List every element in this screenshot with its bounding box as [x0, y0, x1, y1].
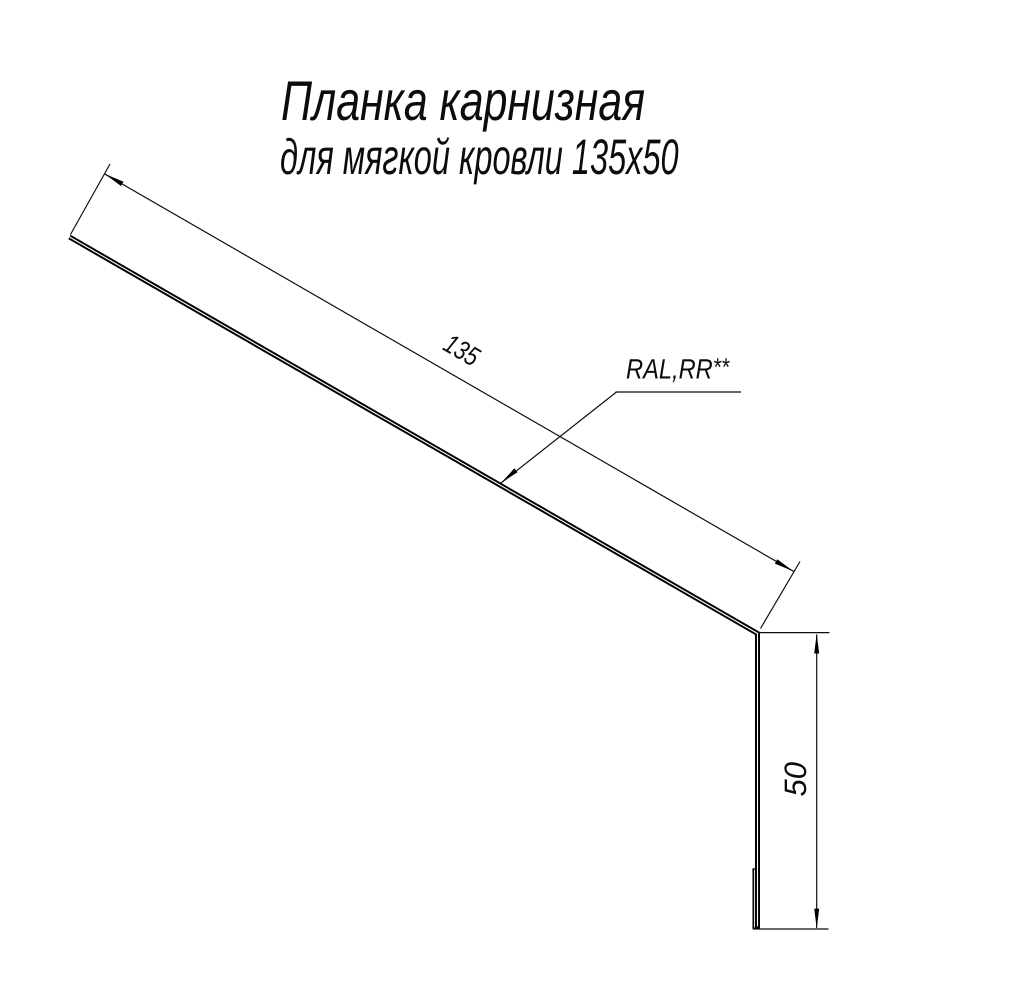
svg-text:для мягкой кровли 135х50: для мягкой кровли 135х50: [280, 129, 679, 185]
svg-text:RAL,RR**: RAL,RR**: [626, 354, 730, 385]
svg-text:50: 50: [778, 762, 813, 796]
svg-text:Планка карнизная: Планка карнизная: [281, 69, 645, 132]
svg-text:135: 135: [439, 328, 486, 372]
